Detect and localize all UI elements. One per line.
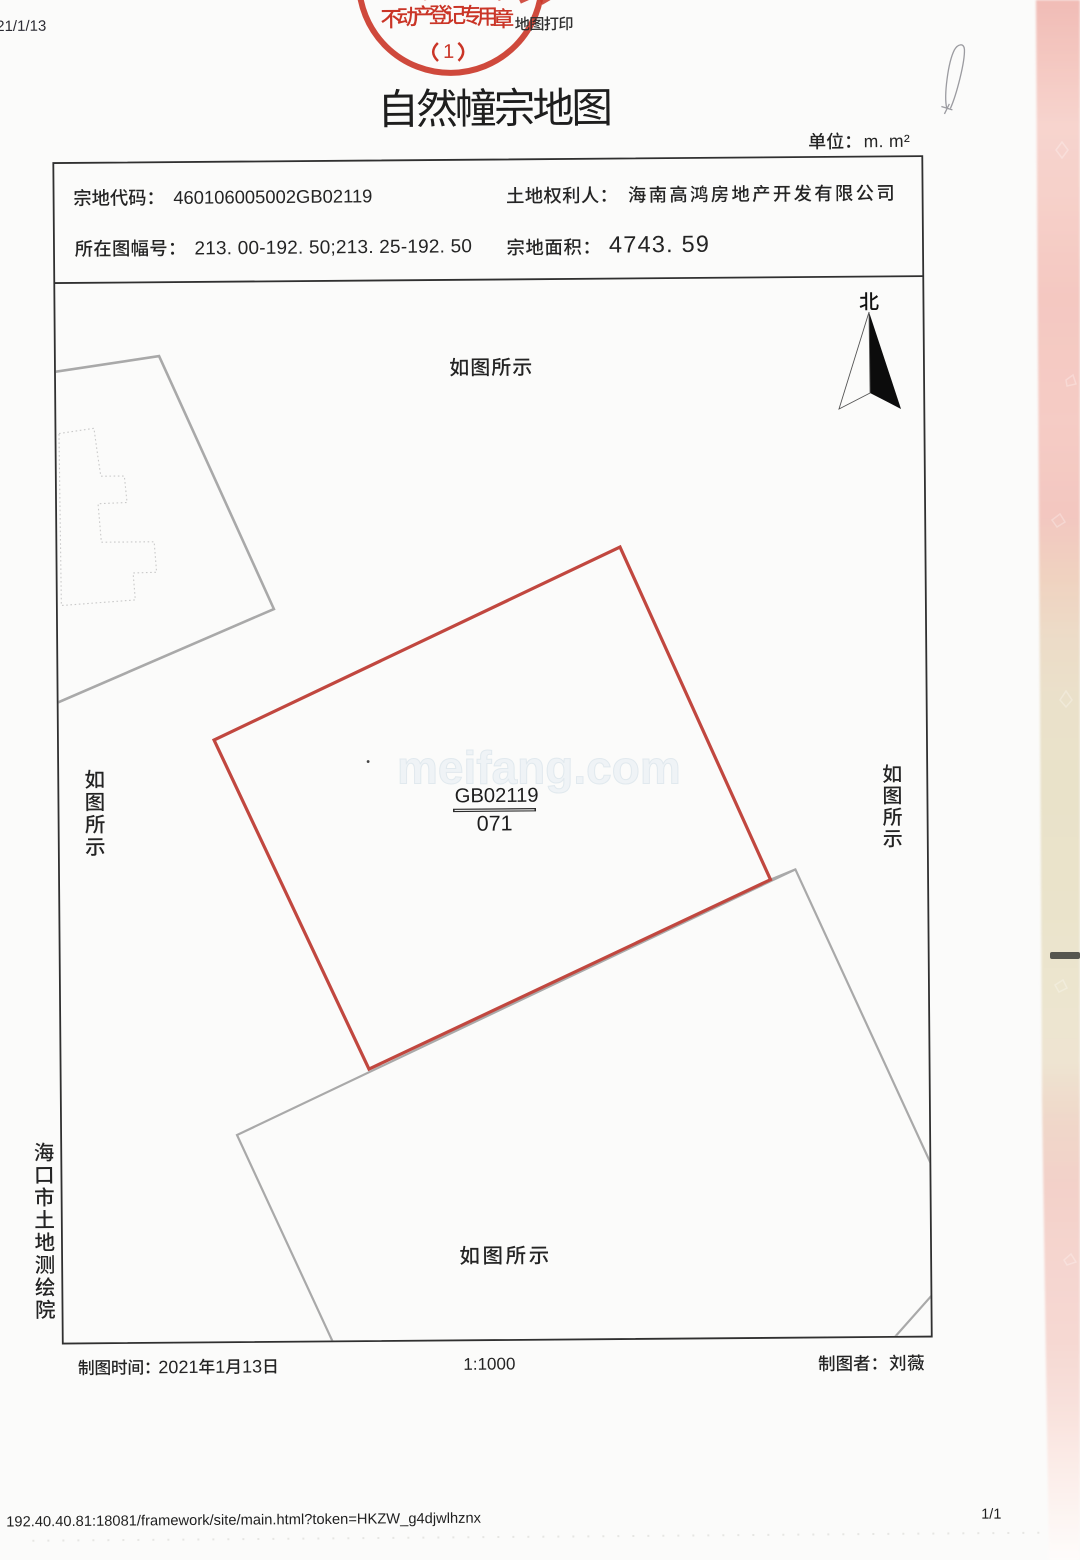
svg-text:213. 00-192. 50;213. 25-192. 5: 213. 00-192. 50;213. 25-192. 50 [194,236,472,259]
svg-text:1: 1 [215,1357,225,1377]
svg-text:2021: 2021 [158,1357,198,1377]
svg-text:meifang.com: meifang.com [397,742,681,794]
svg-text:4743. 59: 4743. 59 [609,231,710,258]
svg-text:GB02119: GB02119 [455,785,539,808]
svg-text:1:1000: 1:1000 [463,1354,515,1373]
svg-text:21/1/13: 21/1/13 [0,18,46,35]
svg-text:071: 071 [477,811,513,835]
svg-text:1: 1 [443,41,454,63]
svg-text:460106005002GB02119: 460106005002GB02119 [173,185,372,208]
svg-text:1/1: 1/1 [981,1507,1001,1523]
svg-text:13: 13 [242,1356,262,1376]
svg-text:m. m²: m. m² [864,131,911,151]
